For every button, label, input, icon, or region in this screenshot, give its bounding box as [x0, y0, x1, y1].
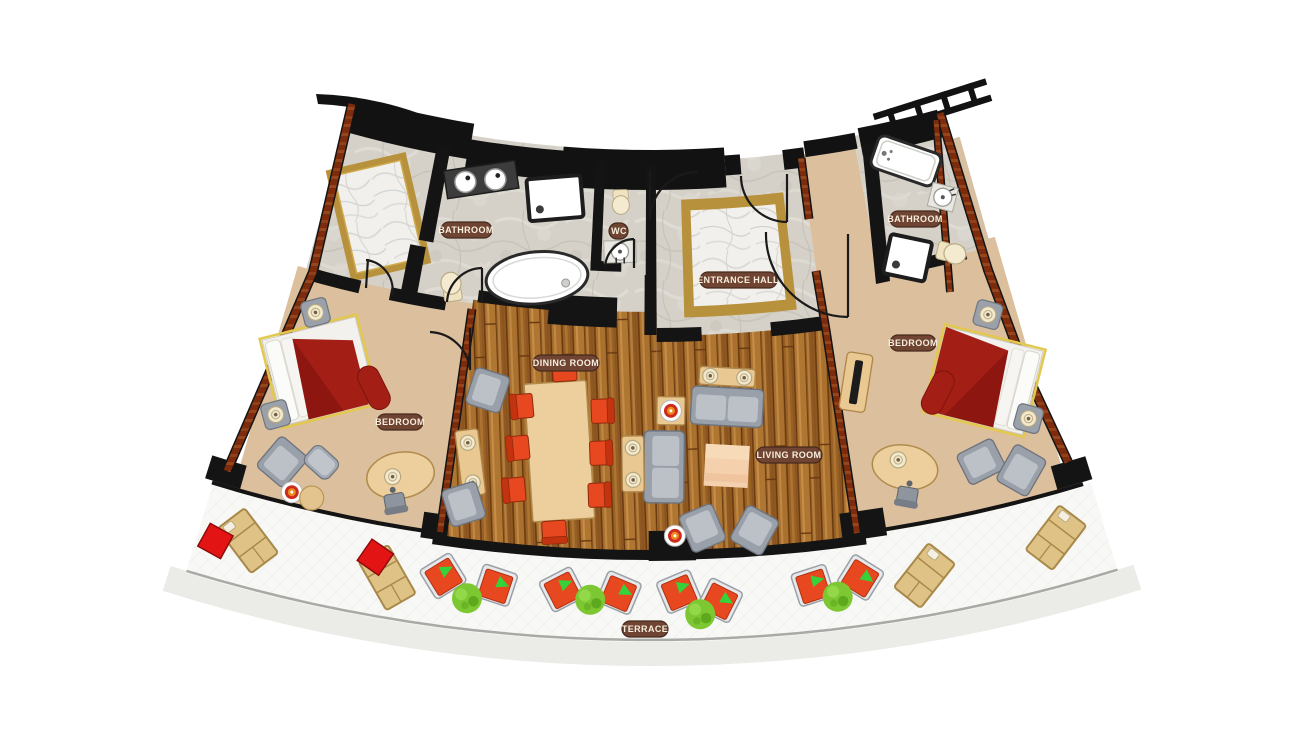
svg-text:BATHROOM: BATHROOM: [438, 225, 494, 235]
svg-text:DINING ROOM: DINING ROOM: [533, 358, 599, 368]
svg-text:BEDROOM: BEDROOM: [375, 417, 425, 427]
svg-text:BATHROOM: BATHROOM: [887, 214, 943, 224]
svg-text:WC: WC: [611, 226, 627, 236]
svg-text:BEDROOM: BEDROOM: [888, 338, 938, 348]
svg-text:ENTRANCE HALL: ENTRANCE HALL: [697, 275, 779, 285]
svg-text:TERRACE: TERRACE: [622, 624, 668, 634]
svg-text:LIVING ROOM: LIVING ROOM: [757, 450, 822, 460]
